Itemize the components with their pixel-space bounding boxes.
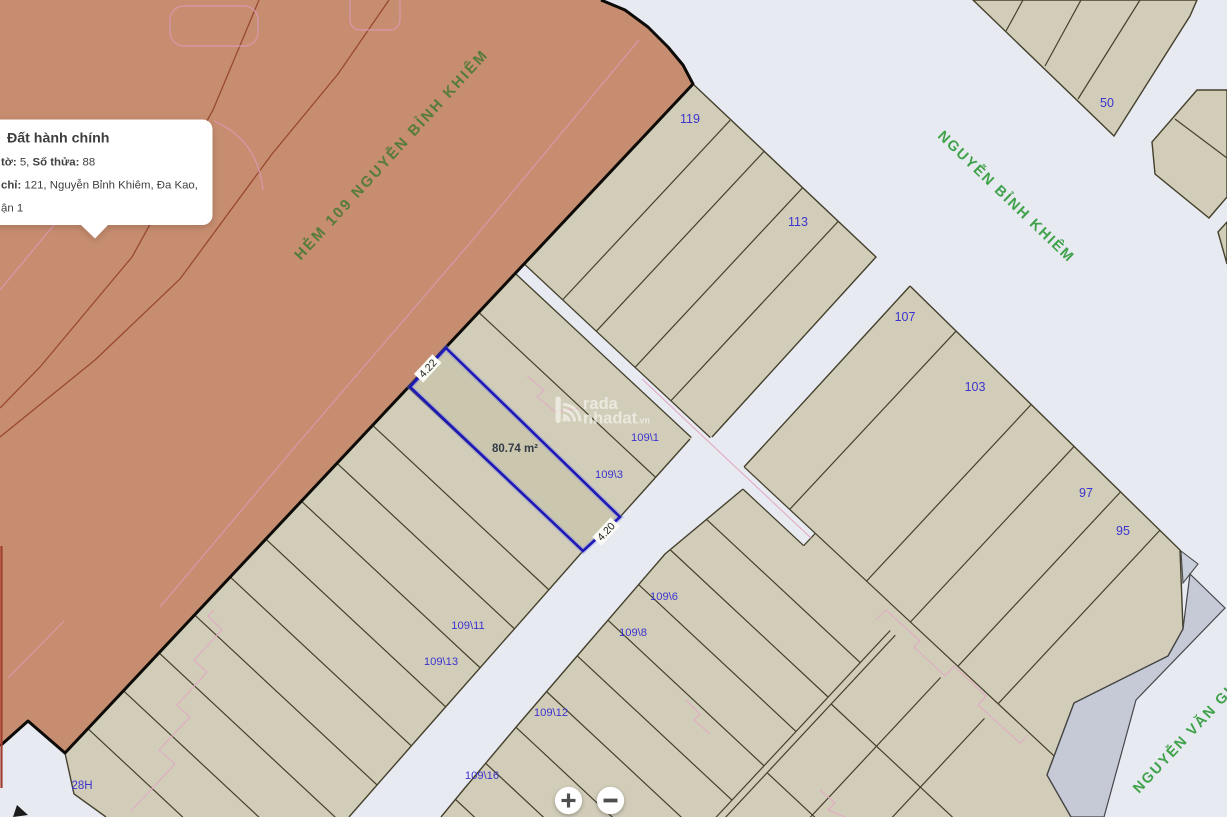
svg-text:nhadat: nhadat <box>583 410 638 428</box>
svg-text:109\13: 109\13 <box>424 656 458 668</box>
svg-text:Đất hành chính: Đất hành chính <box>7 131 109 147</box>
svg-text:113: 113 <box>788 215 808 229</box>
svg-text:95: 95 <box>1116 524 1130 538</box>
svg-text:109\16: 109\16 <box>465 770 499 782</box>
svg-text:103: 103 <box>965 380 986 394</box>
svg-text:109\12: 109\12 <box>534 707 568 719</box>
svg-text:.vn: .vn <box>637 416 650 426</box>
svg-text:28H: 28H <box>71 780 92 792</box>
svg-text:tờ: 5, Số thửa: 88: tờ: 5, Số thửa: 88 <box>1 157 95 169</box>
svg-text:chỉ: 121, Nguyễn Bỉnh Khiêm, Đ: chỉ: 121, Nguyễn Bỉnh Khiêm, Đa Kao, <box>1 179 198 192</box>
svg-text:97: 97 <box>1079 486 1093 500</box>
svg-text:109\3: 109\3 <box>595 469 623 481</box>
svg-text:ận 1: ận 1 <box>1 203 23 215</box>
svg-text:109\8: 109\8 <box>619 627 647 639</box>
svg-text:109\11: 109\11 <box>451 620 484 632</box>
svg-text:107: 107 <box>895 310 916 324</box>
svg-text:80.74 m²: 80.74 m² <box>492 443 538 455</box>
svg-text:109\1: 109\1 <box>631 432 659 444</box>
svg-text:119: 119 <box>680 112 700 126</box>
svg-text:50: 50 <box>1100 96 1114 110</box>
svg-text:109\6: 109\6 <box>650 591 678 603</box>
